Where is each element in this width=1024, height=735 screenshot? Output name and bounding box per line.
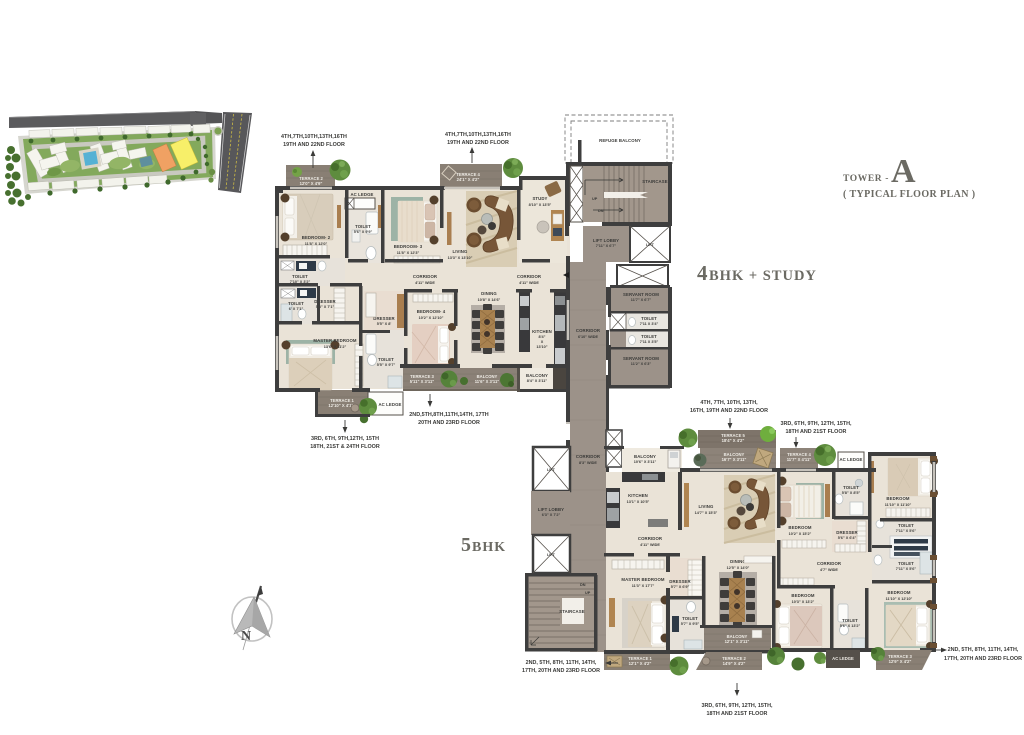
svg-text:17TH, 20TH AND 23RD FLOOR: 17TH, 20TH AND 23RD FLOOR xyxy=(944,656,1022,662)
svg-text:10'2" X 12'10": 10'2" X 12'10" xyxy=(419,316,444,320)
svg-text:24'1" X 4'2": 24'1" X 4'2" xyxy=(457,177,480,182)
svg-text:CORRIDOR: CORRIDOR xyxy=(576,328,601,333)
svg-text:4TH,7TH,10TH,13TH,16TH: 4TH,7TH,10TH,13TH,16TH xyxy=(281,134,347,140)
svg-text:4TH, 7TH, 10TH, 13TH,: 4TH, 7TH, 10TH, 13TH, xyxy=(700,400,758,406)
svg-text:2ND,5TH,8TH,11TH,14TH, 17TH: 2ND,5TH,8TH,11TH,14TH, 17TH xyxy=(409,412,488,418)
svg-text:13'10": 13'10" xyxy=(536,345,547,349)
svg-text:KITCHEN: KITCHEN xyxy=(628,493,648,498)
svg-text:18TH AND 21ST FLOOR: 18TH AND 21ST FLOOR xyxy=(707,711,768,717)
svg-text:11'8" X 12'3": 11'8" X 12'3" xyxy=(397,251,420,255)
svg-text:TOILET: TOILET xyxy=(292,274,308,279)
svg-text:DRESSER: DRESSER xyxy=(836,530,858,535)
svg-text:TOILET: TOILET xyxy=(641,316,657,321)
svg-text:12'1" X 3'11": 12'1" X 3'11" xyxy=(725,639,750,644)
svg-text:TOILET: TOILET xyxy=(898,523,914,528)
svg-text:12'9" X 4'2": 12'9" X 4'2" xyxy=(889,659,912,664)
svg-text:KITCHEN: KITCHEN xyxy=(532,329,552,334)
svg-text:2ND, 5TH, 8TH, 11TH, 14TH,: 2ND, 5TH, 8TH, 11TH, 14TH, xyxy=(948,647,1019,653)
svg-text:13'6" X 11'2": 13'6" X 11'2" xyxy=(324,345,347,349)
svg-text:DRESSER: DRESSER xyxy=(373,316,395,321)
svg-text:N: N xyxy=(241,629,251,644)
svg-text:2ND, 5TH, 8TH, 11TH, 14TH,: 2ND, 5TH, 8TH, 11TH, 14TH, xyxy=(526,660,597,666)
svg-text:11'2" X 6'3": 11'2" X 6'3" xyxy=(631,362,652,366)
svg-text:5'6" X 13'2": 5'6" X 13'2" xyxy=(840,624,861,628)
svg-text:4'11" WIDE: 4'11" WIDE xyxy=(519,281,539,285)
svg-text:11'8" X 12'0": 11'8" X 12'0" xyxy=(305,242,328,246)
svg-text:4'7" WIDE: 4'7" WIDE xyxy=(820,568,838,572)
svg-text:SERVANT ROOM: SERVANT ROOM xyxy=(623,292,659,297)
svg-text:14'7" X 15'3": 14'7" X 15'3" xyxy=(695,511,718,515)
svg-text:8'3" WIDE: 8'3" WIDE xyxy=(579,461,597,465)
svg-text:CORRIDOR: CORRIDOR xyxy=(517,274,542,279)
svg-text:LIFT LOBBY: LIFT LOBBY xyxy=(593,238,619,243)
svg-text:TOILET: TOILET xyxy=(842,618,858,623)
svg-text:18TH AND 21ST FLOOR: 18TH AND 21ST FLOOR xyxy=(786,429,847,435)
svg-text:5'11" X 3'11": 5'11" X 3'11" xyxy=(410,379,435,384)
svg-text:10'3" X 13'2": 10'3" X 13'2" xyxy=(792,600,815,604)
svg-text:5'5" X 8': 5'5" X 8' xyxy=(377,322,392,326)
svg-text:7'11 X 3'4": 7'11 X 3'4" xyxy=(640,322,659,326)
svg-text:BALCONY: BALCONY xyxy=(634,454,656,459)
svg-text:BEDROOM: BEDROOM xyxy=(788,525,811,530)
svg-text:TOILET: TOILET xyxy=(843,485,859,490)
svg-text:CORRIDOR: CORRIDOR xyxy=(413,274,438,279)
svg-text:8'4": 8'4" xyxy=(539,335,546,339)
svg-text:STUDY: STUDY xyxy=(532,196,547,201)
svg-text:7'11" X 6'7": 7'11" X 6'7" xyxy=(596,244,617,248)
svg-text:6'10" WIDE: 6'10" WIDE xyxy=(578,335,598,339)
svg-text:LIFT LOBBY: LIFT LOBBY xyxy=(538,507,564,512)
svg-text:AC LEDGE: AC LEDGE xyxy=(839,457,862,462)
svg-text:MASTER BEDROOM: MASTER BEDROOM xyxy=(313,338,356,343)
svg-text:12'5" X 14'0": 12'5" X 14'0" xyxy=(727,566,750,570)
svg-text:BEDROOM: BEDROOM xyxy=(791,593,814,598)
svg-text:DRESSER: DRESSER xyxy=(669,579,691,584)
svg-text:7'11" X 5'6": 7'11" X 5'6" xyxy=(896,567,917,571)
svg-text:5'6" X 9'9": 5'6" X 9'9" xyxy=(354,230,373,234)
svg-text:TOILET: TOILET xyxy=(898,561,914,566)
svg-text:UP: UP xyxy=(585,591,591,595)
svg-text:BHK: BHK xyxy=(472,540,506,555)
svg-text:19TH AND 22ND FLOOR: 19TH AND 22ND FLOOR xyxy=(283,142,345,148)
svg-text:6'3" X 7'2": 6'3" X 7'2" xyxy=(542,513,561,517)
svg-text:TOWER -: TOWER - xyxy=(843,174,889,184)
svg-text:LIFT: LIFT xyxy=(646,243,655,247)
svg-text:( TYPICAL FLOOR PLAN ): ( TYPICAL FLOOR PLAN ) xyxy=(843,189,976,200)
svg-text:5'5" X 9'7": 5'5" X 9'7" xyxy=(377,363,396,367)
svg-text:10'6" X 3'11": 10'6" X 3'11" xyxy=(634,460,657,464)
svg-text:16'7" X 3'11": 16'7" X 3'11" xyxy=(722,457,747,462)
svg-text:4TH,7TH,10TH,13TH,16TH: 4TH,7TH,10TH,13TH,16TH xyxy=(445,132,511,138)
svg-text:18TH, 21ST & 24TH FLOOR: 18TH, 21ST & 24TH FLOOR xyxy=(310,444,380,450)
svg-text:AC LEDGE: AC LEDGE xyxy=(832,656,854,661)
svg-text:10'8" X 14'6": 10'8" X 14'6" xyxy=(478,298,501,302)
svg-text:5'6" X 6'4": 5'6" X 6'4" xyxy=(838,536,857,540)
svg-text:DINING: DINING xyxy=(481,291,497,296)
svg-text:8'10" X 13'5": 8'10" X 13'5" xyxy=(529,203,552,207)
svg-text:TOILET: TOILET xyxy=(682,616,698,621)
svg-text:TOILET: TOILET xyxy=(355,224,371,229)
svg-text:TOILET: TOILET xyxy=(378,357,394,362)
svg-text:12'1" X 4'2": 12'1" X 4'2" xyxy=(629,661,652,666)
svg-text:X: X xyxy=(541,340,544,344)
svg-text:UP: UP xyxy=(592,197,598,201)
svg-text:8'4" X 3'11": 8'4" X 3'11" xyxy=(527,379,548,383)
svg-text:MASTER BEDROOM: MASTER BEDROOM xyxy=(621,577,664,582)
svg-text:11'7" X 6'7": 11'7" X 6'7" xyxy=(631,298,652,302)
svg-text:DN: DN xyxy=(580,583,586,587)
svg-text:LIVING: LIVING xyxy=(699,504,714,509)
svg-text:10'2" X 15'2": 10'2" X 15'2" xyxy=(789,532,812,536)
svg-text:4'11" WIDE: 4'11" WIDE xyxy=(415,281,435,285)
svg-text:11'7" X 4'11": 11'7" X 4'11" xyxy=(787,457,812,462)
svg-text:CORRIDOR: CORRIDOR xyxy=(638,536,663,541)
svg-text:16TH, 19TH AND 22ND FLOOR: 16TH, 19TH AND 22ND FLOOR xyxy=(690,408,768,414)
svg-text:CORRIDOR: CORRIDOR xyxy=(576,454,601,459)
svg-text:20TH AND 23RD FLOOR: 20TH AND 23RD FLOOR xyxy=(418,420,480,426)
svg-text:DN: DN xyxy=(598,209,604,213)
svg-text:11'10" X 11'10": 11'10" X 11'10" xyxy=(885,503,912,507)
svg-text:BALCONY: BALCONY xyxy=(526,373,548,378)
svg-text:5: 5 xyxy=(461,534,471,556)
svg-text:6' X 7'1": 6' X 7'1" xyxy=(289,307,304,311)
svg-text:LIFT: LIFT xyxy=(547,553,556,557)
svg-text:5'7" X 6'9": 5'7" X 6'9" xyxy=(671,585,690,589)
svg-text:14'9" X 4'2": 14'9" X 4'2" xyxy=(723,661,746,666)
svg-text:REFUGE BALCONY: REFUGE BALCONY xyxy=(599,138,641,143)
svg-text:BHK + STUDY: BHK + STUDY xyxy=(709,268,817,284)
svg-text:11'10" X 12'10": 11'10" X 12'10" xyxy=(886,597,913,601)
svg-text:11'3" X 17'7": 11'3" X 17'7" xyxy=(632,584,655,588)
svg-text:BEDROOM: BEDROOM xyxy=(887,590,910,595)
svg-text:4'11" WIDE: 4'11" WIDE xyxy=(640,543,660,547)
svg-text:LIVING: LIVING xyxy=(453,249,468,254)
svg-text:7'11" X 5'6": 7'11" X 5'6" xyxy=(896,529,917,533)
svg-text:STAIRCASE: STAIRCASE xyxy=(642,179,667,184)
svg-text:3RD, 6TH, 9TH,12TH, 15TH: 3RD, 6TH, 9TH,12TH, 15TH xyxy=(311,436,379,442)
svg-text:AC LEDGE: AC LEDGE xyxy=(350,192,373,197)
svg-text:BEDROOM- 4: BEDROOM- 4 xyxy=(417,309,446,314)
svg-text:19TH AND 22ND FLOOR: 19TH AND 22ND FLOOR xyxy=(447,140,509,146)
svg-text:3RD, 6TH, 9TH, 12TH, 15TH,: 3RD, 6TH, 9TH, 12TH, 15TH, xyxy=(781,421,852,427)
svg-text:12'0" X 4'9": 12'0" X 4'9" xyxy=(300,181,323,186)
svg-text:5'8" X 8'5": 5'8" X 8'5" xyxy=(842,491,861,495)
svg-text:BEDROOM- 3: BEDROOM- 3 xyxy=(394,244,423,249)
svg-text:BEDROOM- 2: BEDROOM- 2 xyxy=(302,235,331,240)
svg-text:13'3" X 13'10": 13'3" X 13'10" xyxy=(448,256,473,260)
svg-text:TOILET: TOILET xyxy=(641,334,657,339)
svg-text:17TH, 20TH AND 23RD FLOOR: 17TH, 20TH AND 23RD FLOOR xyxy=(522,668,600,674)
svg-text:A: A xyxy=(891,153,916,190)
svg-text:13'1" X 10'5": 13'1" X 10'5" xyxy=(627,500,650,504)
svg-text:BEDROOM: BEDROOM xyxy=(886,496,909,501)
svg-text:CORRIDOR: CORRIDOR xyxy=(817,561,842,566)
svg-text:LIFT: LIFT xyxy=(547,468,556,472)
svg-text:AC LEDGE: AC LEDGE xyxy=(378,402,401,407)
svg-text:11'6" X 3'11": 11'6" X 3'11" xyxy=(475,379,500,384)
svg-text:SERVANT ROOM: SERVANT ROOM xyxy=(623,356,659,361)
svg-text:7'11 X 3'5": 7'11 X 3'5" xyxy=(640,340,659,344)
svg-text:4: 4 xyxy=(697,261,708,285)
svg-text:3RD, 6TH, 9TH, 12TH, 15TH,: 3RD, 6TH, 9TH, 12TH, 15TH, xyxy=(702,703,773,709)
svg-text:18'4" X 4'2": 18'4" X 4'2" xyxy=(722,438,745,443)
svg-text:STAIRCASE: STAIRCASE xyxy=(559,609,584,614)
svg-text:5'7" X 9'5": 5'7" X 9'5" xyxy=(681,622,700,626)
svg-text:TOILET: TOILET xyxy=(288,301,304,306)
